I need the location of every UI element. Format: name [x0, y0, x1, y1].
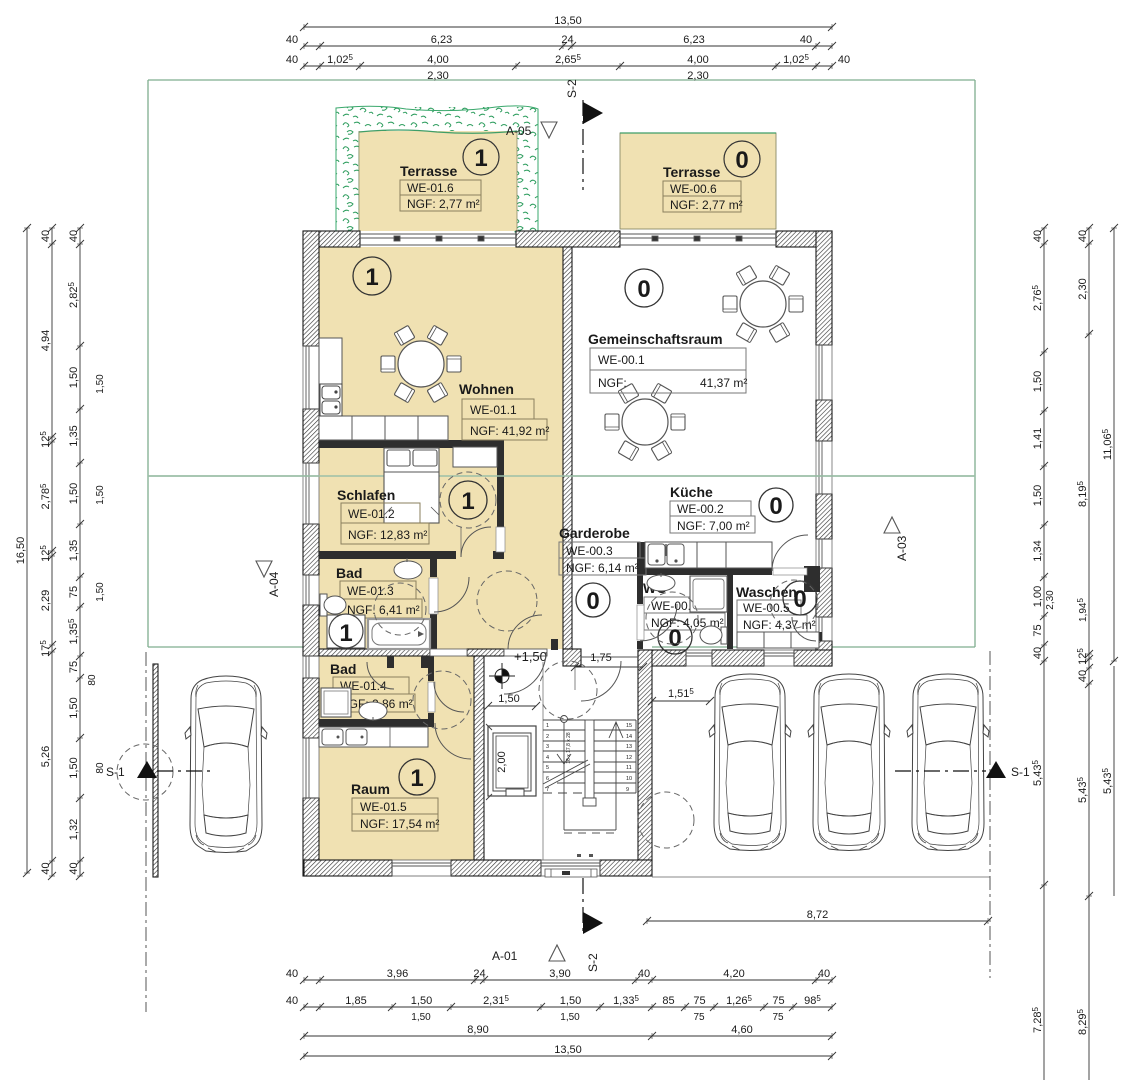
svg-text:40: 40: [818, 968, 830, 980]
svg-text:1,50: 1,50: [560, 1012, 580, 1023]
svg-text:9: 9: [626, 787, 629, 793]
svg-text:75: 75: [693, 1012, 705, 1023]
svg-text:40: 40: [286, 968, 298, 980]
svg-text:NGF: 12,83 m²: NGF: 12,83 m²: [348, 528, 427, 542]
svg-text:40: 40: [68, 230, 80, 242]
svg-text:4: 4: [546, 755, 549, 761]
svg-text:1: 1: [410, 765, 423, 792]
svg-text:2,30: 2,30: [1045, 590, 1056, 610]
svg-text:11: 11: [626, 765, 632, 771]
svg-text:WE-00.5: WE-00.5: [743, 601, 790, 615]
svg-text:S-2: S-2: [565, 79, 579, 98]
svg-text:2: 2: [546, 734, 549, 740]
svg-text:1,85: 1,85: [345, 995, 366, 1007]
svg-text:WE-01.5: WE-01.5: [360, 800, 407, 814]
svg-text:14: 14: [626, 734, 632, 740]
svg-text:1,50: 1,50: [1032, 485, 1044, 506]
svg-text:75: 75: [772, 1012, 784, 1023]
svg-text:1,50: 1,50: [411, 1012, 431, 1023]
svg-text:24: 24: [561, 34, 573, 46]
svg-text:6,23: 6,23: [431, 34, 452, 46]
svg-text:Terrasse: Terrasse: [663, 164, 721, 180]
svg-text:1,50: 1,50: [68, 367, 80, 388]
svg-text:NGF: 6,14 m²: NGF: 6,14 m²: [566, 561, 639, 575]
svg-text:13,50: 13,50: [554, 15, 582, 27]
svg-text:4,00: 4,00: [427, 54, 448, 66]
svg-text:1: 1: [546, 723, 549, 729]
svg-text:75: 75: [1032, 624, 1044, 636]
svg-text:1,50: 1,50: [411, 995, 432, 1007]
svg-text:NGF: 2,77 m²: NGF: 2,77 m²: [670, 198, 743, 212]
svg-text:1,75: 1,75: [590, 652, 611, 664]
svg-text:3: 3: [546, 744, 549, 750]
svg-text:1,50: 1,50: [560, 995, 581, 1007]
svg-text:S-1: S-1: [106, 765, 125, 779]
svg-text:4,20: 4,20: [723, 968, 744, 980]
svg-text:0: 0: [735, 147, 748, 174]
svg-text:8,72: 8,72: [807, 909, 828, 921]
svg-text:Bad: Bad: [330, 661, 356, 677]
svg-text:Küche: Küche: [670, 484, 713, 500]
svg-text:4,94: 4,94: [40, 330, 52, 351]
svg-text:40: 40: [286, 34, 298, 46]
svg-text:Schlafen: Schlafen: [337, 487, 395, 503]
svg-text:1,50: 1,50: [95, 582, 106, 602]
svg-text:WE-00.1: WE-00.1: [598, 353, 645, 367]
svg-text:2,30: 2,30: [687, 70, 708, 82]
svg-text:0: 0: [793, 586, 806, 613]
svg-text:16 x 17,8 x 28: 16 x 17,8 x 28: [566, 732, 572, 764]
svg-text:Raum: Raum: [351, 781, 390, 797]
svg-text:4,60: 4,60: [731, 1024, 752, 1036]
svg-text:1,50: 1,50: [95, 485, 106, 505]
svg-text:8,90: 8,90: [467, 1024, 488, 1036]
svg-text:40: 40: [1032, 647, 1044, 659]
svg-text:Garderobe: Garderobe: [559, 525, 630, 541]
svg-text:15: 15: [626, 723, 632, 729]
svg-text:13: 13: [626, 744, 632, 750]
svg-text:10: 10: [626, 776, 632, 782]
svg-text:S-1: S-1: [1011, 765, 1030, 779]
svg-text:1,41: 1,41: [1032, 428, 1044, 449]
svg-text:NGF: 41,92 m²: NGF: 41,92 m²: [470, 424, 549, 438]
svg-text:5: 5: [546, 765, 549, 771]
svg-text:WE-01.1: WE-01.1: [470, 403, 517, 417]
svg-text:75: 75: [772, 995, 784, 1007]
svg-text:40: 40: [286, 995, 298, 1007]
svg-text:24: 24: [473, 968, 485, 980]
svg-text:1,35: 1,35: [68, 540, 80, 561]
svg-text:1,50: 1,50: [1032, 371, 1044, 392]
svg-text:40: 40: [40, 230, 52, 242]
svg-text:40: 40: [286, 54, 298, 66]
svg-text:1: 1: [365, 264, 378, 291]
svg-text:1,50: 1,50: [498, 693, 519, 705]
svg-text:1,32: 1,32: [68, 819, 80, 840]
svg-text:75: 75: [693, 995, 705, 1007]
svg-text:0: 0: [586, 588, 599, 615]
svg-text:1,00: 1,00: [1032, 586, 1044, 607]
svg-text:NGF: 17,54 m²: NGF: 17,54 m²: [360, 817, 439, 831]
svg-text:40: 40: [40, 862, 52, 874]
svg-text:13,50: 13,50: [554, 1044, 582, 1056]
svg-text:80: 80: [87, 674, 98, 686]
svg-text:Gemeinschaftsraum: Gemeinschaftsraum: [588, 331, 723, 347]
svg-text:NGF:: NGF:: [598, 376, 627, 390]
svg-text:7: 7: [546, 787, 549, 793]
svg-text:1,50: 1,50: [68, 483, 80, 504]
svg-text:40: 40: [638, 968, 650, 980]
svg-text:1,50: 1,50: [68, 697, 80, 718]
svg-text:Terrasse: Terrasse: [400, 163, 458, 179]
svg-text:1,34: 1,34: [1032, 540, 1044, 561]
svg-text:A-01: A-01: [492, 949, 518, 963]
svg-text:40: 40: [800, 34, 812, 46]
svg-text:3,90: 3,90: [549, 968, 570, 980]
svg-text:NGF: 4,37 m²: NGF: 4,37 m²: [743, 618, 816, 632]
svg-text:5,26: 5,26: [40, 746, 52, 767]
svg-text:1: 1: [339, 620, 352, 647]
svg-text:80: 80: [95, 762, 106, 774]
svg-text:6,23: 6,23: [683, 34, 704, 46]
svg-text:A-04: A-04: [267, 571, 281, 597]
svg-text:A-03: A-03: [895, 535, 909, 561]
svg-text:0: 0: [769, 493, 782, 520]
svg-text:1: 1: [474, 145, 487, 172]
svg-text:85: 85: [662, 995, 674, 1007]
svg-text:16,50: 16,50: [15, 537, 27, 565]
svg-text:1,35: 1,35: [68, 425, 80, 446]
svg-text:2,30: 2,30: [1077, 278, 1089, 299]
svg-text:40: 40: [68, 862, 80, 874]
svg-text:40: 40: [1077, 670, 1089, 682]
svg-text:75: 75: [68, 661, 80, 673]
svg-text:NGF: 7,00 m²: NGF: 7,00 m²: [677, 519, 750, 533]
svg-text:1: 1: [461, 488, 474, 515]
svg-text:0: 0: [668, 625, 681, 652]
svg-text:A-05: A-05: [506, 124, 532, 138]
svg-text:WE-01.2: WE-01.2: [348, 507, 395, 521]
svg-text:Bad: Bad: [336, 565, 362, 581]
svg-text:41,37 m²: 41,37 m²: [700, 376, 747, 390]
svg-text:WE-00.3: WE-00.3: [566, 544, 613, 558]
svg-text:WE-01.6: WE-01.6: [407, 181, 454, 195]
svg-text:4,00: 4,00: [687, 54, 708, 66]
svg-text:S-2: S-2: [586, 953, 600, 972]
svg-text:2,00: 2,00: [496, 751, 508, 772]
svg-text:1,50: 1,50: [95, 374, 106, 394]
svg-text:1,50: 1,50: [68, 757, 80, 778]
svg-text:40: 40: [838, 54, 850, 66]
svg-text:NGF: 2,77 m²: NGF: 2,77 m²: [407, 197, 480, 211]
svg-text:12: 12: [626, 755, 632, 761]
svg-text:0: 0: [637, 276, 650, 303]
svg-text:2,29: 2,29: [40, 590, 52, 611]
svg-text:WE-00.6: WE-00.6: [670, 182, 717, 196]
svg-text:WE-01.3: WE-01.3: [347, 584, 394, 598]
svg-text:Wohnen: Wohnen: [459, 381, 514, 397]
svg-text:40: 40: [1077, 230, 1089, 242]
svg-text:75: 75: [68, 586, 80, 598]
svg-text:+1,50: +1,50: [514, 649, 547, 664]
svg-text:2,30: 2,30: [427, 70, 448, 82]
svg-text:40: 40: [1032, 230, 1044, 242]
svg-text:6: 6: [546, 776, 549, 782]
svg-text:WE-00.2: WE-00.2: [677, 502, 724, 516]
svg-text:3,96: 3,96: [387, 968, 408, 980]
